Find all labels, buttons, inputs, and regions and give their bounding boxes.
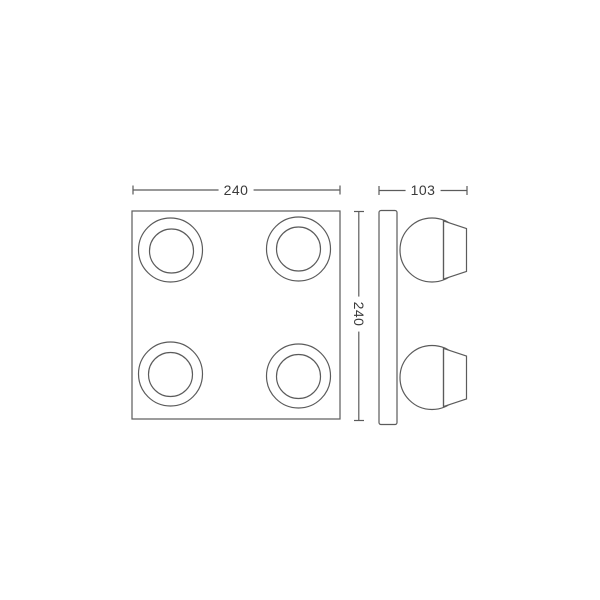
front-width-dim-label: 240 xyxy=(219,183,254,197)
side-plate-outline xyxy=(379,211,397,425)
dimension-drawing xyxy=(0,0,600,600)
front-plate-outline xyxy=(132,211,340,419)
front-height-dim-label: 240 xyxy=(352,297,366,332)
side-spot-head-top xyxy=(400,218,467,282)
spot-head-bezel xyxy=(444,221,467,279)
spot-ring-inner-bottom-left xyxy=(149,353,193,397)
side-spot-head-bottom xyxy=(400,346,467,410)
dimension-drawing-canvas: 240 103 240 xyxy=(0,0,600,600)
spot-ring-inner-bottom-right xyxy=(277,355,321,399)
spot-ring-inner-top-right xyxy=(277,227,321,271)
spot-head-bezel xyxy=(444,348,467,406)
side-depth-dim-label: 103 xyxy=(406,183,441,197)
spot-ring-inner-top-left xyxy=(150,229,194,273)
